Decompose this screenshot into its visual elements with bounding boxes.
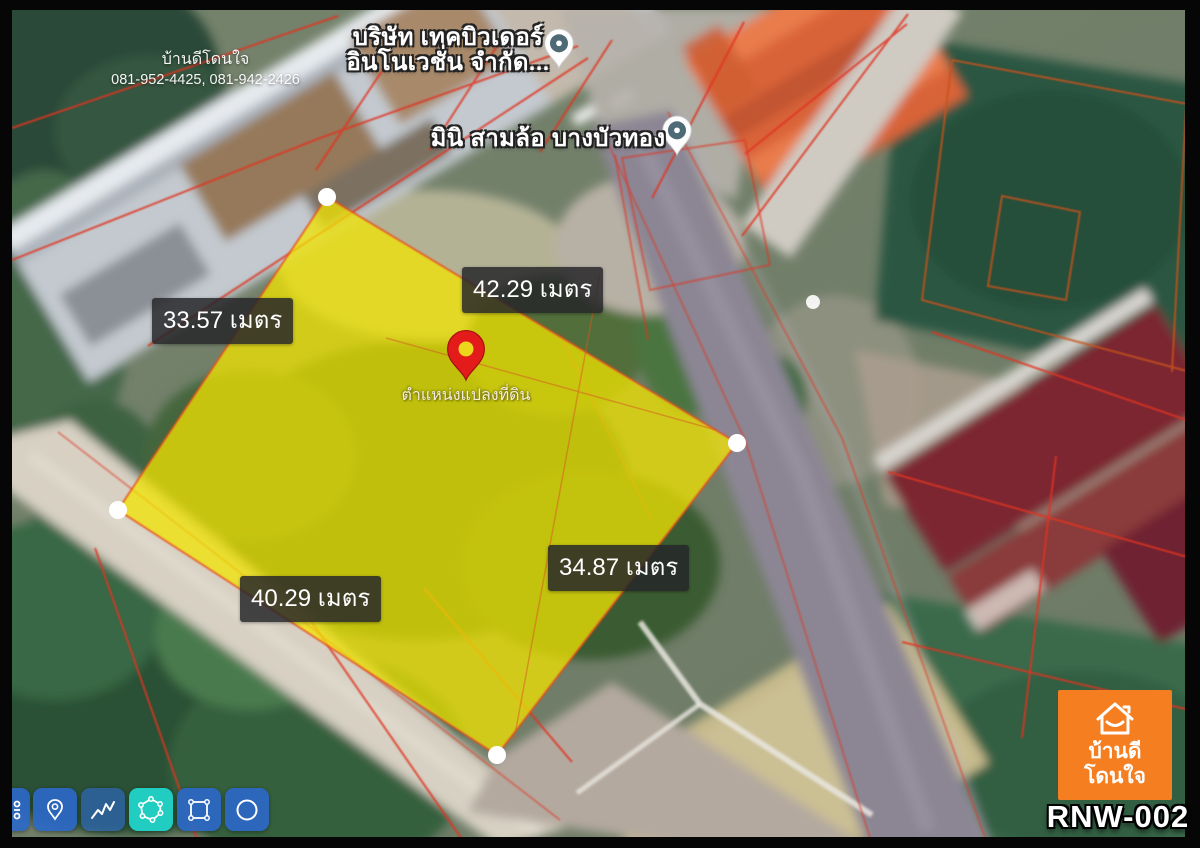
place-label-shop: มินิ สามล้อ บางบัวทอง bbox=[428, 127, 668, 152]
polyline-tool-button[interactable] bbox=[81, 788, 125, 831]
listing-code: RNW-002 bbox=[1044, 799, 1192, 835]
measurement-label-west: 33.57 เมตร bbox=[152, 298, 293, 344]
polygon-tool-icon bbox=[136, 795, 166, 825]
logo-text-line1: บ้านดี bbox=[1088, 740, 1141, 765]
watermark-phones: 081-952-4425, 081-942-2426 bbox=[78, 72, 333, 88]
watermark-brand: บ้านดีโดนใจ bbox=[98, 47, 313, 72]
rectangle-tool-button[interactable] bbox=[177, 788, 221, 831]
place-label-company: บริษัท เทคบิวเดอร์ อินโนเวชั่น จำกัด... bbox=[333, 26, 563, 76]
house-icon bbox=[1091, 698, 1139, 740]
polygon-tool-button[interactable] bbox=[129, 788, 173, 831]
frame-border-right bbox=[1185, 0, 1200, 848]
measurement-label-south: 40.29 เมตร bbox=[240, 576, 381, 622]
marker-tool-icon bbox=[41, 796, 69, 824]
circle-tool-button[interactable] bbox=[225, 788, 269, 831]
frame-border-left bbox=[0, 0, 12, 848]
measurement-label-east: 34.87 เมตร bbox=[548, 545, 689, 591]
frame-border-top bbox=[0, 0, 1200, 10]
circle-tool-icon bbox=[233, 796, 261, 824]
logo-text-line2: โดนใจ bbox=[1084, 765, 1146, 790]
marker-tool-button[interactable] bbox=[33, 788, 77, 831]
brand-logo: บ้านดี โดนใจ bbox=[1058, 690, 1172, 800]
rectangle-tool-icon bbox=[185, 796, 213, 824]
measurement-label-north: 42.29 เมตร bbox=[462, 267, 603, 313]
screenshot-stage: บ้านดีโดนใจ 081-952-4425, 081-942-2426 บ… bbox=[0, 0, 1200, 848]
polyline-tool-icon bbox=[89, 796, 117, 824]
frame-border-bottom bbox=[0, 837, 1200, 848]
plot-pin-caption: ตำแหน่งแปลงที่ดิน bbox=[388, 383, 544, 408]
place-label-company-line1: บริษัท เทคบิวเดอร์ bbox=[333, 26, 563, 51]
place-label-shop-line1: มินิ สามล้อ บางบัวทอง bbox=[428, 127, 668, 152]
place-label-company-line2: อินโนเวชั่น จำกัด... bbox=[333, 51, 563, 76]
